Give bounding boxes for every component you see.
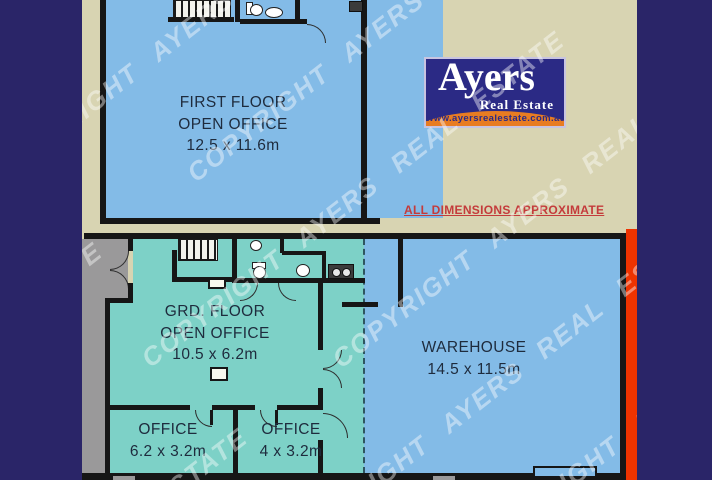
wall bbox=[398, 239, 403, 307]
warehouse-door-marker bbox=[533, 466, 597, 478]
wall bbox=[342, 302, 378, 307]
basin-icon bbox=[265, 7, 283, 18]
wall bbox=[277, 405, 318, 410]
logo-url: www.ayersrealestate.com.au bbox=[426, 113, 564, 124]
path-mark bbox=[433, 476, 455, 480]
stairs-icon bbox=[173, 0, 231, 18]
entry-gray-area bbox=[82, 303, 105, 475]
stairs-icon bbox=[178, 239, 218, 261]
toilet-icon bbox=[253, 266, 266, 279]
wall bbox=[318, 283, 323, 350]
ayers-logo: Ayers Real Estate www.ayersrealestate.co… bbox=[424, 57, 566, 128]
entry-gray-area bbox=[82, 239, 128, 303]
wall bbox=[282, 251, 324, 255]
room-dims: 12.5 x 11.6m bbox=[153, 135, 313, 157]
sink-bowl-icon bbox=[332, 268, 341, 277]
room-label-office-left: OFFICE 6.2 x 3.2m bbox=[108, 419, 228, 462]
wall bbox=[232, 239, 237, 283]
room-name: FIRST FLOOR bbox=[153, 92, 313, 114]
wall bbox=[318, 388, 323, 410]
hot-water-unit-icon bbox=[349, 1, 363, 12]
room-name: OFFICE bbox=[231, 419, 351, 441]
room-name: WAREHOUSE bbox=[394, 337, 554, 359]
logo-title: Ayers bbox=[438, 57, 535, 100]
wall bbox=[240, 19, 307, 24]
column-marker bbox=[210, 367, 228, 381]
warehouse-boundary-dashed bbox=[363, 239, 365, 473]
room-name: OPEN OFFICE bbox=[153, 114, 313, 136]
room-name: GRD. FLOOR bbox=[135, 301, 295, 323]
wall bbox=[100, 218, 380, 224]
toilet-icon bbox=[250, 4, 263, 16]
sink-bowl-icon bbox=[342, 268, 351, 277]
room-dims: 10.5 x 6.2m bbox=[135, 344, 295, 366]
wall bbox=[168, 17, 234, 22]
room-label-office-right: OFFICE 4 x 3.2m bbox=[231, 419, 351, 462]
room-name: OPEN OFFICE bbox=[135, 323, 295, 345]
kitchen-sink-icon bbox=[328, 264, 354, 279]
wall bbox=[110, 405, 190, 410]
room-label-grd-office: GRD. FLOOR OPEN OFFICE 10.5 x 6.2m bbox=[135, 301, 295, 366]
path-mark bbox=[113, 476, 135, 480]
floorplan-screenshot: FIRST FLOOR OPEN OFFICE 12.5 x 11.6m Aye… bbox=[0, 0, 712, 480]
room-label-first-floor: FIRST FLOOR OPEN OFFICE 12.5 x 11.6m bbox=[153, 92, 313, 157]
wall bbox=[178, 259, 216, 261]
wall bbox=[100, 0, 106, 224]
room-dims: 4 x 3.2m bbox=[231, 441, 351, 463]
room-name: OFFICE bbox=[108, 419, 228, 441]
roller-door-red bbox=[626, 229, 637, 480]
floorplan-photo: FIRST FLOOR OPEN OFFICE 12.5 x 11.6m Aye… bbox=[82, 0, 637, 480]
toilet-icon bbox=[296, 264, 310, 277]
wall bbox=[84, 233, 626, 239]
wall bbox=[128, 239, 133, 251]
room-dims: 6.2 x 3.2m bbox=[108, 441, 228, 463]
wall bbox=[361, 0, 367, 224]
room-label-warehouse: WAREHOUSE 14.5 x 11.5m bbox=[394, 337, 554, 380]
door-marker bbox=[208, 278, 226, 289]
disclaimer-text: ALL DIMENSIONS APPROXIMATE bbox=[404, 203, 604, 217]
room-dims: 14.5 x 11.5m bbox=[394, 359, 554, 381]
toilet-icon bbox=[250, 240, 262, 251]
